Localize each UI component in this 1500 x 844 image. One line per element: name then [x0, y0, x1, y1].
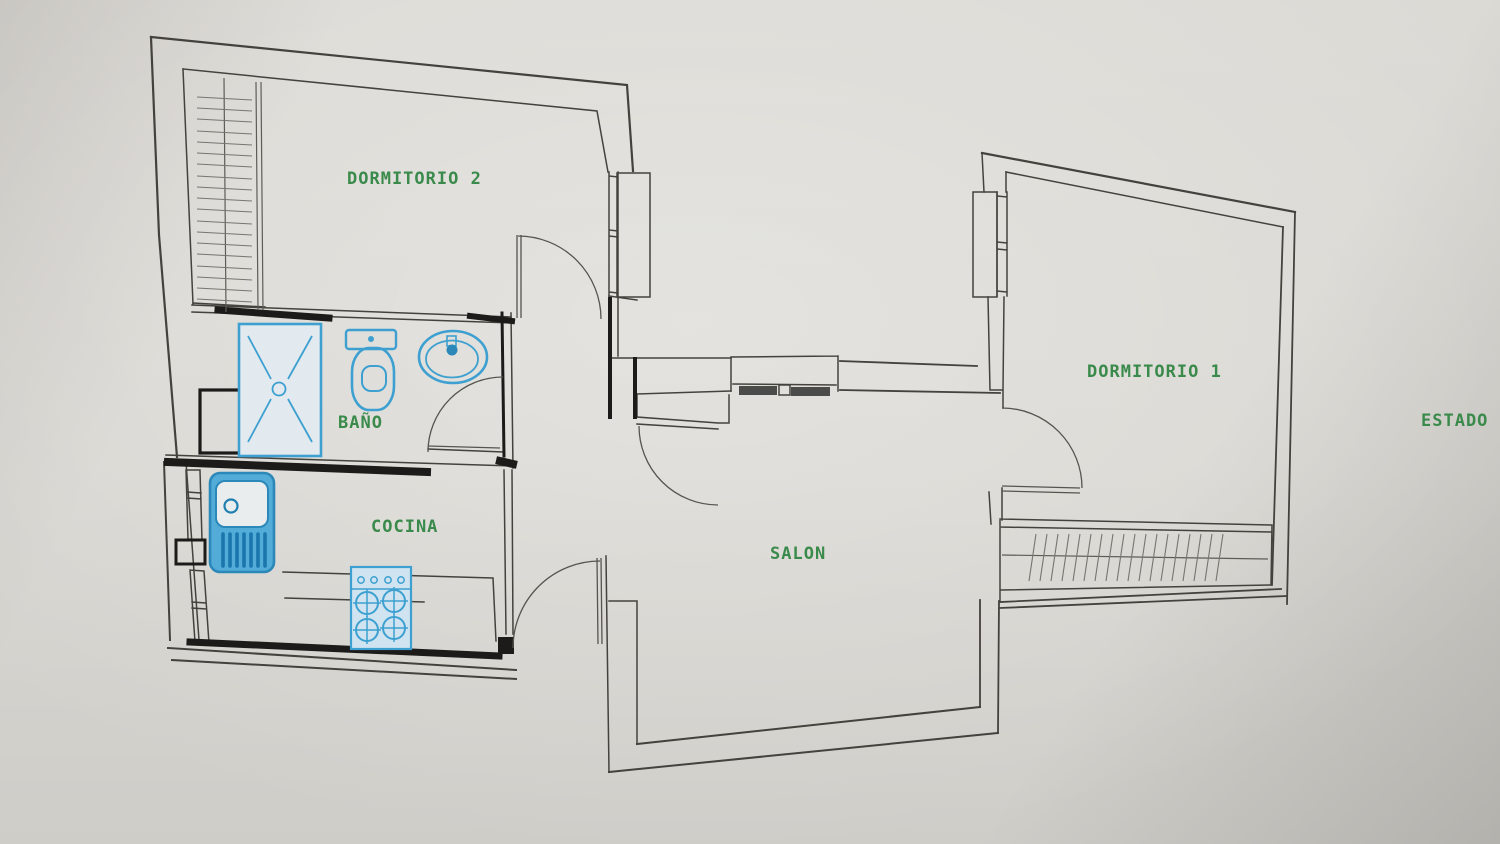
toilet-bowl — [352, 348, 394, 410]
washbasin-tap-dot — [447, 345, 458, 356]
wardrobe1-box — [1000, 519, 1272, 601]
door-leaf-bath — [428, 446, 500, 448]
door-arc-dorm1 — [1002, 408, 1082, 488]
wall-salon-bottom — [609, 707, 998, 772]
wall-salon-right — [980, 600, 999, 733]
wardrobe-hatch-dormitorio-2 — [197, 78, 263, 312]
heavy-bath-right-wall — [502, 313, 504, 456]
heavy-bath-bottom — [168, 462, 427, 472]
shower-drain — [273, 383, 286, 396]
door-arc-bath — [428, 377, 503, 452]
heavy-bath-bottom-jamb — [500, 461, 513, 464]
wall-corridor-left — [504, 313, 513, 634]
window-dorm1-frame — [997, 192, 1007, 296]
wall-dorm1-left — [982, 153, 1006, 524]
stove-fixture — [351, 567, 411, 649]
door-leaf-dorm1 — [1002, 486, 1080, 493]
step-kitchen-left — [176, 540, 205, 564]
wall-dorm2-outer — [151, 37, 633, 171]
wardrobe2-rail — [224, 78, 263, 312]
wall-corridor-dorm1 — [840, 361, 1000, 393]
window-kitchen-2 — [190, 570, 209, 643]
wall-bath-door-sill — [428, 449, 503, 452]
heavy-bath-top-left — [218, 310, 329, 318]
room-label-bano: BAÑO — [338, 410, 383, 433]
wall-below-dorm1 — [1000, 589, 1286, 608]
wall-dorm1-outer-top — [982, 153, 1295, 212]
shower-fixture — [239, 324, 321, 456]
window-dorm2-sill — [617, 173, 650, 297]
heavy-kitchen-bottom — [190, 642, 499, 656]
door-leaf-dorm2 — [517, 235, 521, 318]
wall-corridor-right — [610, 299, 731, 417]
kitchen-sink-fixture — [210, 473, 274, 572]
window-corridor-mid — [779, 385, 790, 395]
wall-kitchen-left-outer — [164, 462, 170, 640]
wardrobe1-rail — [1002, 555, 1268, 559]
door-arc-dorm2 — [518, 236, 601, 319]
pillar-bath-left — [200, 390, 243, 453]
room-label-dormitorio-2: DORMITORIO 2 — [347, 169, 482, 189]
toilet-button — [368, 336, 374, 342]
wall-dorm1-right — [1272, 212, 1295, 604]
wall-dorm2-left-outer — [151, 37, 177, 457]
window-bar-right — [791, 387, 830, 396]
toilet-bowl-inner — [362, 366, 386, 391]
wardrobe-hatch-dormitorio-1 — [1002, 534, 1268, 581]
walls-thin — [151, 37, 1295, 772]
door-arc-salon — [639, 426, 718, 505]
room-label-dormitorio-1: DORMITORIO 1 — [1087, 362, 1222, 382]
toilet-fixture — [346, 330, 396, 410]
wall-dorm1-inner-top — [1006, 172, 1283, 227]
window-bar-left — [739, 386, 777, 395]
annotation-estado: ESTADO — [1421, 411, 1488, 431]
wall-dorm2-inner-top — [183, 69, 608, 172]
window-dorm1-sill — [973, 192, 997, 297]
labels: DORMITORIO 2 BAÑO COCINA SALON DORMITORI… — [338, 169, 1488, 564]
wall-dorm2-inner-left — [183, 69, 193, 304]
kitchen-sink-drainer — [223, 534, 265, 566]
kitchen-sink-drain — [225, 500, 238, 513]
heavy-kitchen-door-jamb — [498, 637, 514, 654]
washbasin-fixture — [419, 331, 487, 383]
floor-plan-svg: DORMITORIO 2 BAÑO COCINA SALON DORMITORI… — [0, 0, 1500, 844]
door-leaf-kitchen — [597, 558, 602, 644]
washbasin-outer — [419, 331, 487, 383]
door-arc-kitchen — [513, 561, 600, 648]
room-label-cocina: COCINA — [371, 517, 438, 537]
wall-salon-left — [606, 556, 637, 772]
wall-salon-door — [637, 395, 729, 429]
room-label-salon: SALON — [770, 544, 826, 564]
floor-plan-photo: DORMITORIO 2 BAÑO COCINA SALON DORMITORI… — [0, 0, 1500, 844]
